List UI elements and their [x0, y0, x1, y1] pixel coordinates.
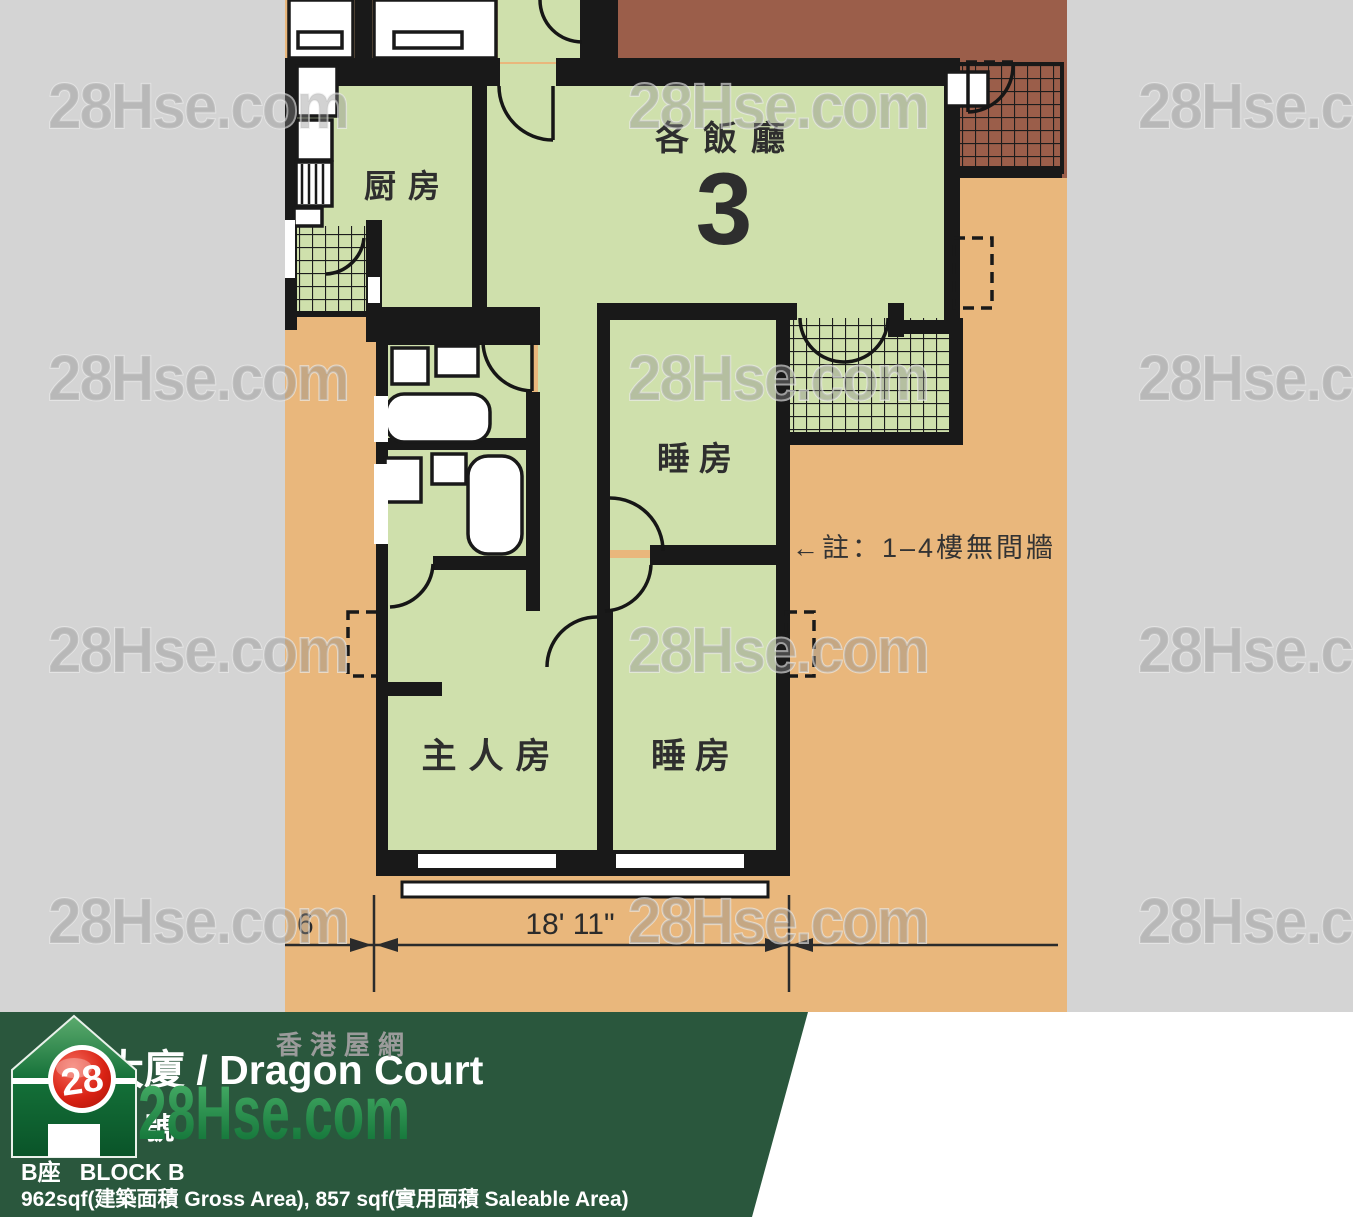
logo-badge-number: 28	[58, 1057, 106, 1104]
bathtub-2	[468, 456, 522, 554]
watermark: 28Hse.com	[628, 342, 928, 414]
watermark: 28Hse.com	[48, 614, 348, 686]
watermark: 28Hse.com	[1138, 342, 1353, 414]
note-annotation: ←註：1–4樓無間牆	[792, 533, 1056, 563]
estate-areas: 962sqf(建築面積 Gross Area), 857 sqf(實用面積 Sa…	[21, 1183, 629, 1213]
logo-tagline: 香港屋網	[276, 1030, 412, 1060]
logo-brand-text: 28Hse.com	[138, 1071, 410, 1156]
watermark: 28Hse.com	[1138, 885, 1353, 957]
basin-1	[436, 346, 478, 376]
watermark: 28Hse.com	[628, 70, 928, 142]
watermark: 28Hse.com	[48, 342, 348, 414]
info-banner: 金龍大廈 / Dragon Court 金龍臺 6 號 B座 BLOCK B 9…	[0, 1012, 1353, 1217]
watermark: 28Hse.com	[1138, 614, 1353, 686]
watermark: 28Hse.com	[48, 70, 348, 142]
floorplan-image: 厨房 各飯廳 3 睡房 主人房 睡房 ←註：1–4樓無間牆 18' 11" 6 …	[0, 0, 1353, 1012]
logo-house-icon: 28	[12, 1016, 136, 1157]
site-logo: 28 28Hse.com 香港屋網	[0, 1012, 440, 1172]
bedroom-top-label: 睡房	[657, 440, 741, 477]
kitchen-platform-hatch	[290, 226, 370, 314]
watermark: 28Hse.com	[628, 614, 928, 686]
master-bedroom-label: 主人房	[421, 737, 562, 776]
screenshot-root: 厨房 各飯廳 3 睡房 主人房 睡房 ←註：1–4樓無間牆 18' 11" 6 …	[0, 0, 1353, 1217]
toilet-cistern-1	[392, 348, 428, 384]
watermark: 28Hse.com	[48, 885, 348, 957]
watermark: 28Hse.com	[628, 885, 928, 957]
basin-2	[432, 454, 466, 484]
dimension-width-label: 18' 11"	[525, 908, 614, 941]
toilet-cistern-2	[385, 458, 421, 502]
kitchen-label: 厨房	[364, 168, 452, 204]
bathtub-1	[386, 394, 490, 442]
watermark: 28Hse.com	[1138, 70, 1353, 142]
unit-number-label: 3	[696, 152, 753, 266]
bedroom-bottom-label: 睡房	[651, 737, 739, 776]
